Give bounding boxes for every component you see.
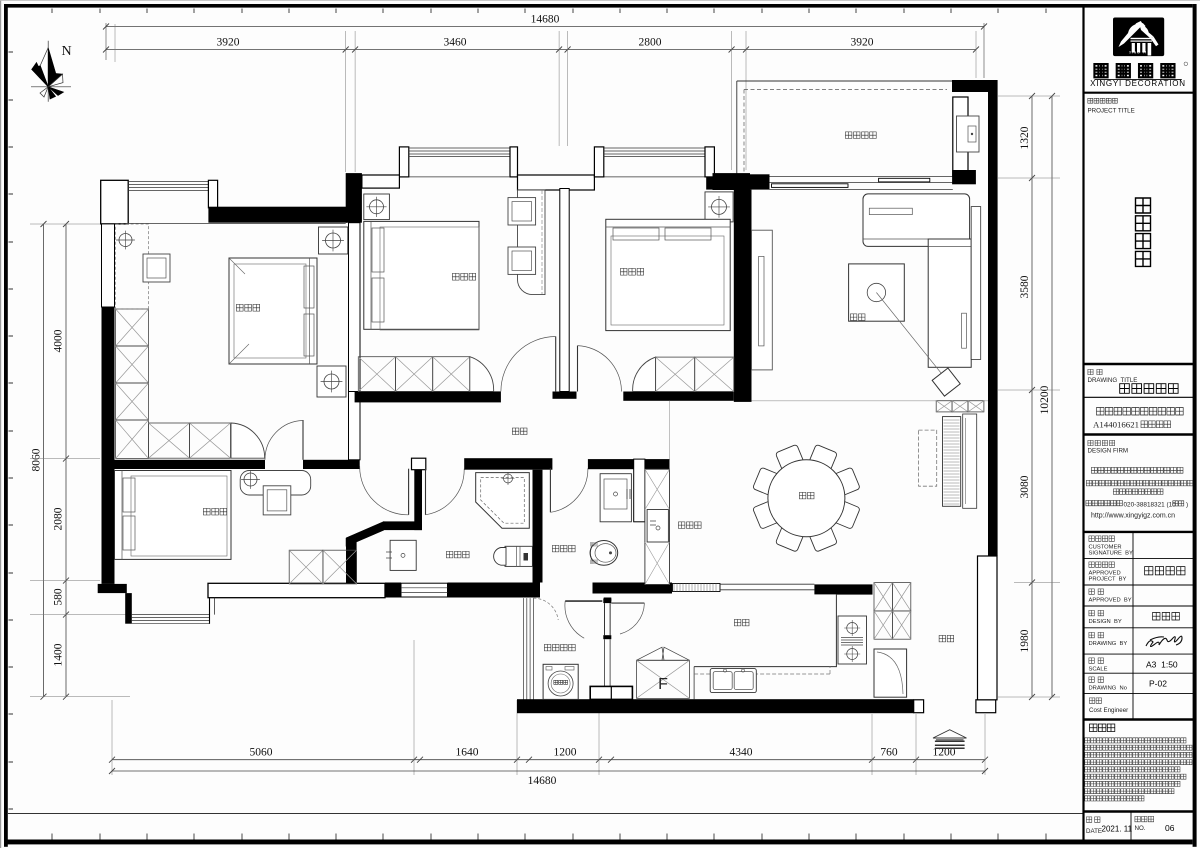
svg-text:14680: 14680 (528, 775, 557, 787)
svg-text:760: 760 (880, 747, 898, 759)
svg-text:XING YI: XING YI (1129, 51, 1147, 55)
svg-text:NO.: NO. (1135, 825, 1146, 832)
svg-text:DRAWING No: DRAWING No (1089, 686, 1127, 692)
svg-text:http://www.xingyigz.com.cn: http://www.xingyigz.com.cn (1091, 513, 1175, 520)
svg-text:14680: 14680 (531, 14, 560, 26)
svg-text:A144016621: A144016621 (1093, 420, 1139, 430)
svg-text:2800: 2800 (639, 37, 662, 49)
svg-text:DESIGN FIRM: DESIGN FIRM (1088, 448, 1129, 455)
svg-text:3580: 3580 (1019, 275, 1031, 298)
svg-text:DESIGN BY: DESIGN BY (1089, 619, 1122, 625)
svg-text:2021. 11: 2021. 11 (1102, 825, 1133, 834)
svg-text:8060: 8060 (31, 448, 43, 471)
svg-text:N: N (61, 44, 71, 59)
svg-text:3080: 3080 (1019, 475, 1031, 498)
svg-text:A3 1:50: A3 1:50 (1146, 660, 1178, 670)
svg-text:3460: 3460 (444, 37, 467, 49)
svg-text:XINGYI DECORATION: XINGYI DECORATION (1090, 79, 1186, 88)
svg-text:PROJECT BY: PROJECT BY (1089, 577, 1127, 583)
svg-text:4000: 4000 (53, 329, 65, 352)
svg-text:Cost Engineer: Cost Engineer (1089, 707, 1128, 714)
svg-text:1320: 1320 (1019, 126, 1031, 149)
svg-text:4340: 4340 (730, 747, 753, 759)
svg-text:DATE: DATE (1086, 828, 1102, 835)
svg-text:06: 06 (1165, 823, 1175, 833)
svg-text:P-02: P-02 (1149, 679, 1167, 689)
svg-text:1640: 1640 (456, 747, 479, 759)
svg-text:PROJECT TITLE: PROJECT TITLE (1088, 108, 1135, 115)
svg-text:SIGNATURE BY: SIGNATURE BY (1089, 551, 1133, 557)
svg-text:1400: 1400 (53, 643, 65, 666)
svg-text:DRAWING BY: DRAWING BY (1089, 641, 1128, 647)
svg-text:): ) (1186, 501, 1188, 508)
svg-text:3920: 3920 (217, 37, 240, 49)
svg-text:F: F (658, 676, 668, 693)
svg-text:DRAWING TITLE: DRAWING TITLE (1088, 377, 1138, 384)
svg-text:1200: 1200 (554, 747, 577, 759)
svg-text:10200: 10200 (1039, 385, 1051, 414)
svg-text:2080: 2080 (53, 507, 65, 530)
svg-text:020-38818321 (10: 020-38818321 (10 (1124, 501, 1177, 508)
svg-text:3920: 3920 (851, 37, 874, 49)
svg-text:APPROVED BY: APPROVED BY (1089, 598, 1132, 604)
svg-text:580: 580 (53, 588, 65, 606)
svg-text:1980: 1980 (1019, 629, 1031, 652)
svg-text:SCALE: SCALE (1089, 667, 1108, 673)
svg-text:5060: 5060 (250, 747, 273, 759)
